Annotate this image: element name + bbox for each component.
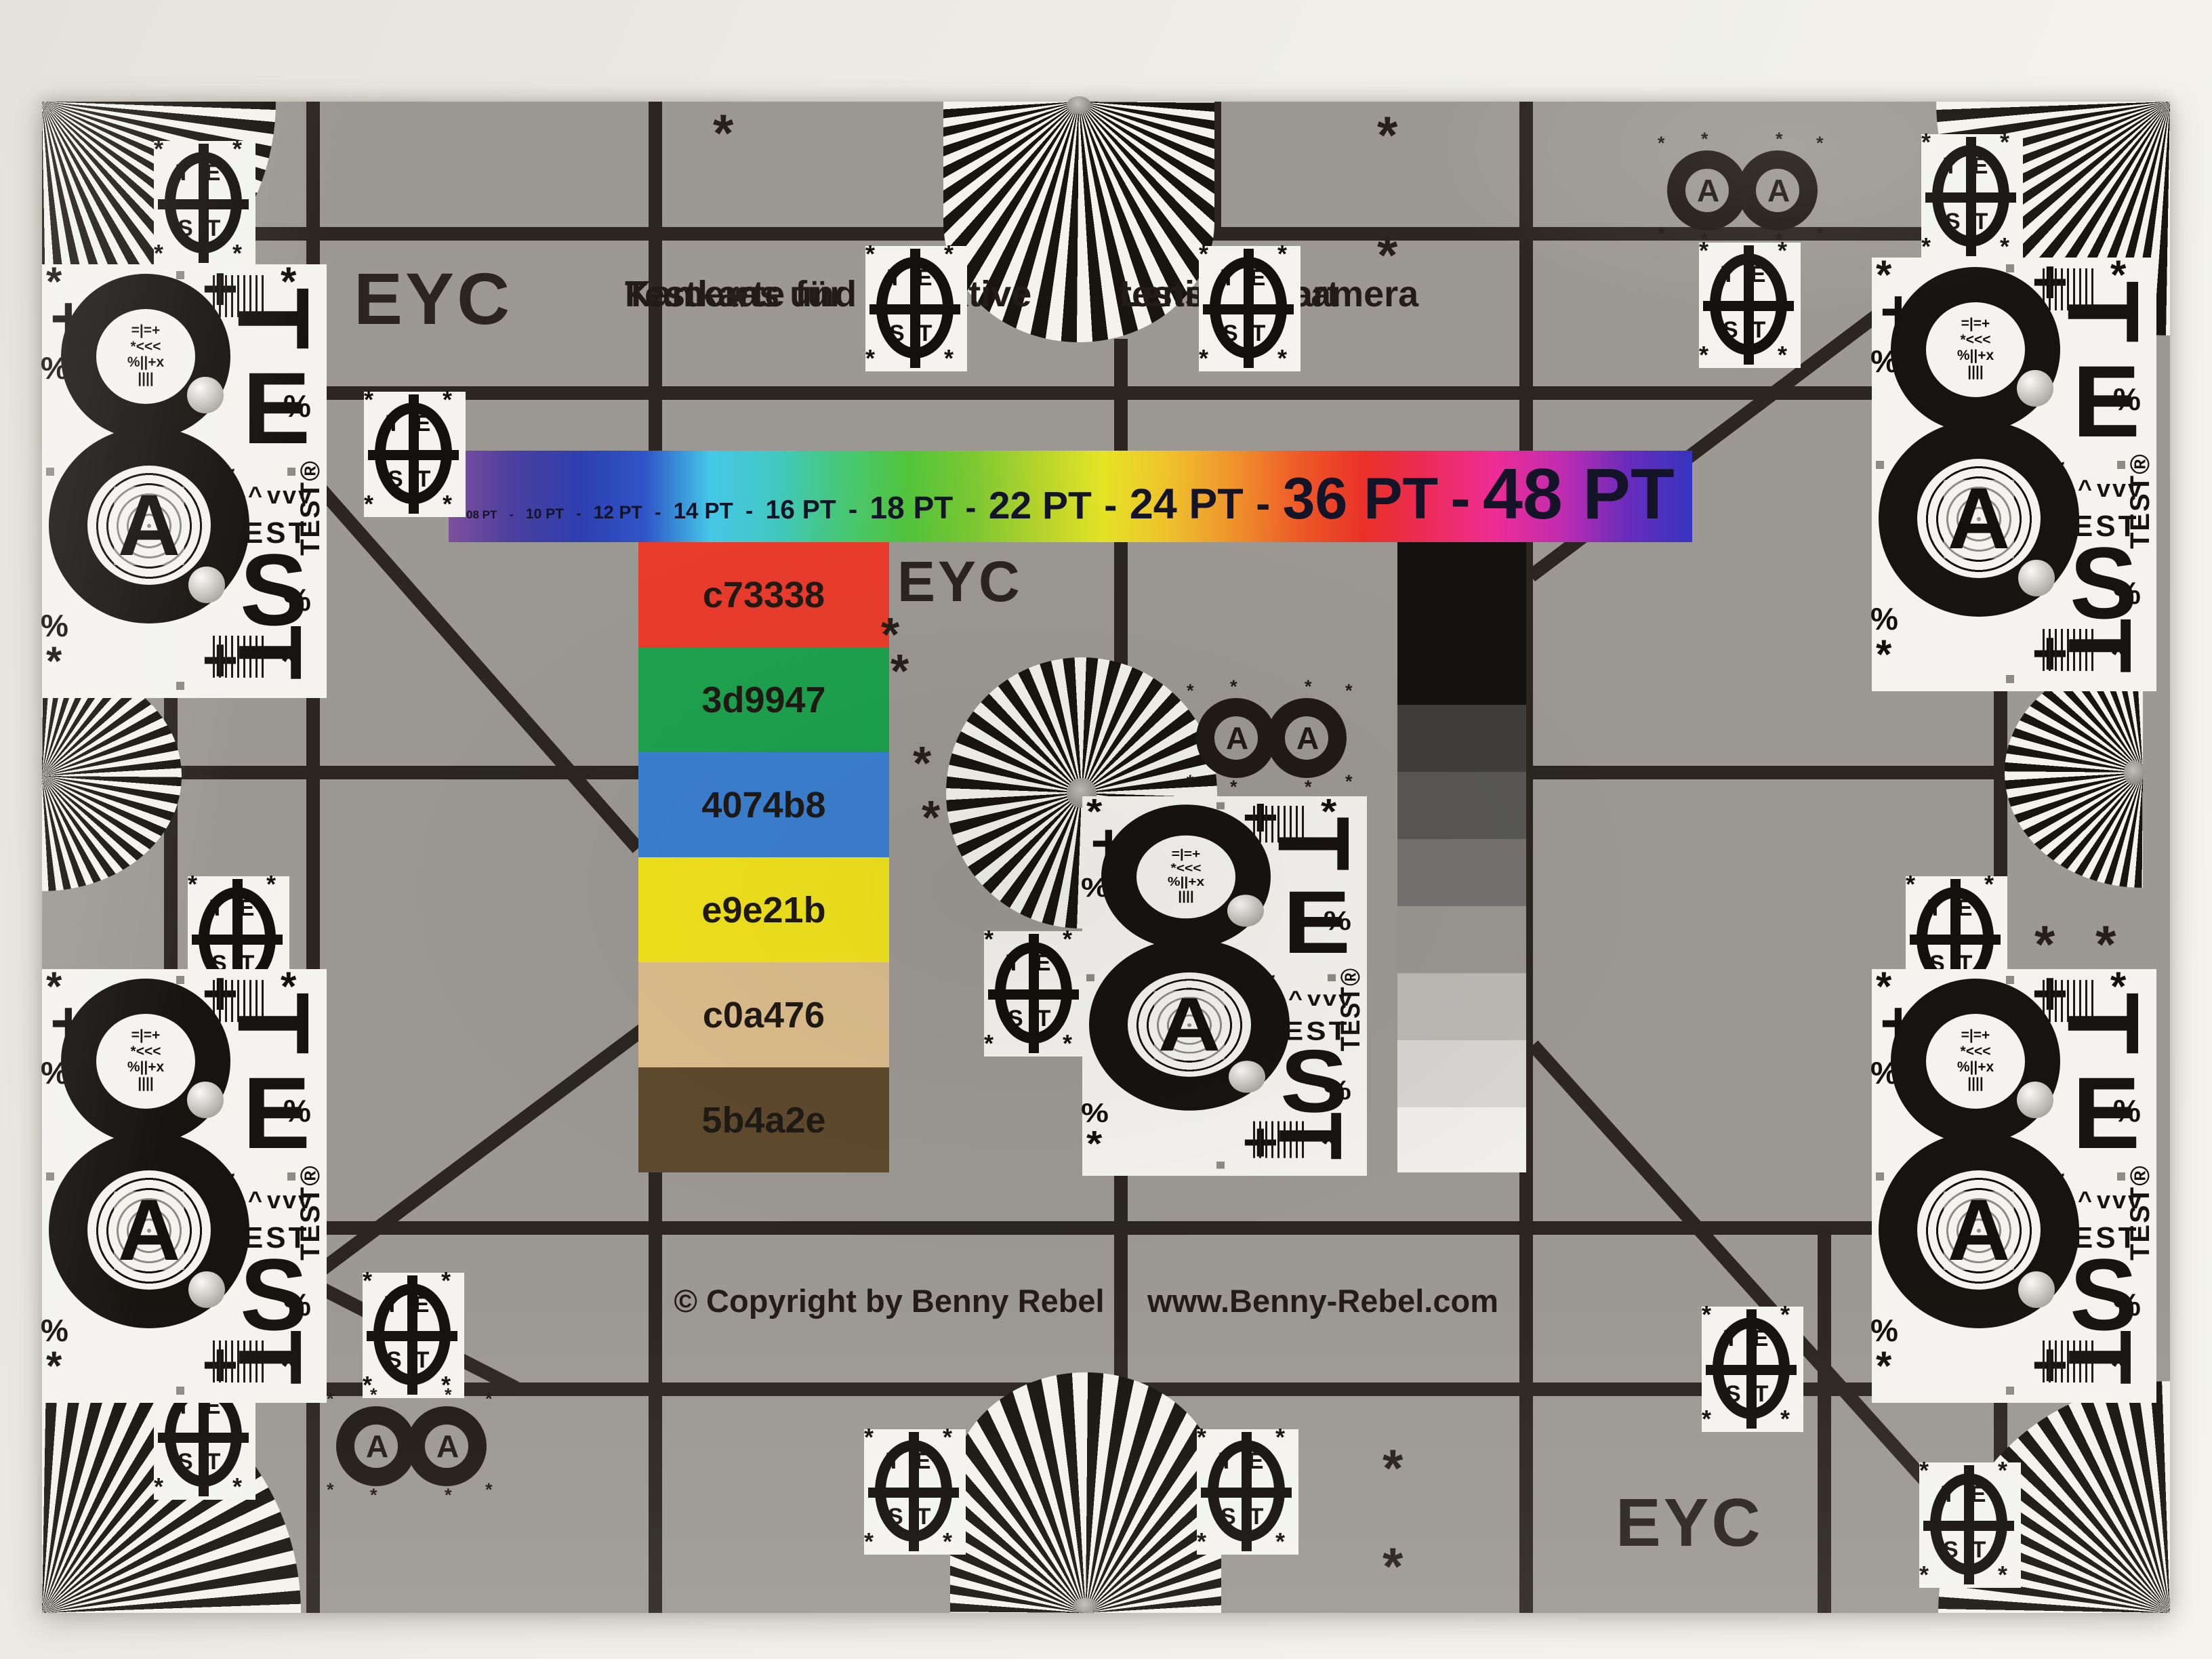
asterisk-icon: *: [1701, 230, 1708, 249]
logo-cross-horizontal: [192, 935, 283, 945]
asterisk-icon: *: [944, 346, 954, 371]
micro-row: %||+x: [99, 354, 192, 371]
letter-t-rotated: T: [234, 1330, 306, 1385]
grid-line-v7: [1818, 1228, 1831, 1613]
calibration-square: [1328, 975, 1336, 982]
asterisk-icon: *: [1277, 346, 1287, 371]
gradient-sphere: [187, 377, 224, 413]
logo-cross-horizontal: [869, 304, 960, 314]
asterisk-icon: *: [232, 1475, 242, 1499]
letter-a: A: [1944, 480, 2014, 558]
asterisk-icon: *: [1921, 130, 1931, 155]
micro-row: ||||: [99, 371, 192, 387]
asterisk-icon: *: [1230, 678, 1237, 696]
grayscale-step: [1397, 906, 1526, 973]
calibration-square: [46, 468, 54, 476]
test-registered-vertical: TEST®: [1336, 967, 1366, 1051]
asterisk-mark: *: [1382, 1447, 1403, 1489]
calibration-square: [287, 1172, 295, 1181]
logo-cross-horizontal: [158, 1433, 249, 1443]
grayscale-step: [1397, 772, 1526, 839]
logo-text-te: TE: [1221, 265, 1280, 291]
calibration-square: [2117, 461, 2125, 469]
letter-t-rotated: T: [2063, 281, 2144, 343]
gradient-sphere: [187, 1082, 224, 1118]
font-size-label: 48 PT: [1483, 453, 1675, 535]
color-patch-blue: 4074b8: [638, 752, 889, 857]
logo-text-st: ST: [1223, 321, 1279, 347]
gradient-sphere: [2018, 1271, 2055, 1308]
micro-test-pattern: =|=+ *<<< %||+x ||||: [99, 312, 192, 404]
logo-cross-horizontal: [1910, 935, 2001, 945]
micro-test-pattern: =|=+ *<<< %||+x ||||: [99, 1017, 192, 1109]
micro-test-pattern: =|=+ *<<< %||+x ||||: [1139, 838, 1233, 918]
logo-text-st: ST: [1725, 1381, 1782, 1408]
logo-text-st: ST: [1943, 1537, 1999, 1563]
logo-text-te: TE: [888, 265, 947, 291]
logo-text-st: ST: [1945, 209, 2001, 235]
asterisk-icon: *: [1984, 872, 1994, 897]
eight-a-marker-inner: A A * * * * * * * * * *: [331, 1398, 500, 1500]
grayscale-step: [1397, 1040, 1526, 1107]
micro-row: =|=+: [1929, 1027, 2022, 1044]
micro-row: =|=+: [99, 323, 192, 339]
logo-text-te: TE: [1724, 1326, 1783, 1352]
copyright-text: © Copyright by Benny Rebel: [655, 1282, 1123, 1319]
asterisk-icon: *: [1919, 1458, 1929, 1483]
asterisk-mark: *: [2095, 923, 2116, 965]
asterisk-icon: *: [46, 641, 62, 682]
gradient-sphere: [1227, 895, 1264, 926]
asterisk-mark: *: [890, 652, 909, 690]
asterisk-icon: *: [1658, 134, 1665, 152]
grayscale-step: [1397, 1107, 1526, 1172]
letter-a: A: [114, 487, 184, 565]
resolution-panel-bottom-left: * * * * % % % % + + + + =|=+ *<<< %||+x …: [42, 969, 327, 1403]
letter-s: S: [2070, 1254, 2137, 1335]
micro-row: %||+x: [1929, 1059, 2022, 1076]
asterisk-icon: *: [485, 1481, 493, 1499]
resolution-panel-center: * * * * % % % % + + + + =|=+ *<<< %||+x …: [1082, 796, 1367, 1176]
asterisk-icon: *: [944, 242, 954, 266]
asterisk-icon: *: [1780, 1407, 1790, 1431]
separator: -: [576, 505, 581, 523]
logo-text-te: TE: [1721, 262, 1780, 288]
asterisk-icon: *: [865, 346, 875, 371]
font-size-label: 12 PT: [594, 502, 642, 523]
color-patch-column: c73338 3d9947 4074b8 e9e21b c0a476 5b4a2…: [638, 542, 889, 1172]
test-chart: 08 PT - 10 PT - 12 PT - 14 PT - 16 PT - …: [42, 102, 2170, 1613]
micro-row: %||+x: [1139, 875, 1233, 889]
asterisk-icon: *: [1187, 773, 1194, 791]
color-patch-label: 5b4a2e: [701, 1099, 825, 1141]
color-patch-label: 3d9947: [701, 679, 825, 721]
resolution-panel-surface: * * * * % % % % + + + + =|=+ *<<< %||+x …: [1872, 258, 2156, 691]
asterisk-icon: *: [426, 1416, 431, 1429]
logo-text-st: ST: [386, 1347, 443, 1374]
asterisk-icon: *: [2000, 234, 2009, 259]
separator: -: [966, 489, 977, 527]
letter-a: A: [114, 1191, 184, 1269]
asterisk-mark: *: [728, 285, 748, 327]
percent-mark: %: [1870, 600, 1898, 637]
calibration-square: [2117, 1172, 2125, 1181]
logo-text-st: ST: [1008, 1006, 1064, 1032]
asterisk-icon: *: [355, 1416, 361, 1429]
logo-text-te: TE: [886, 1448, 945, 1475]
asterisk-icon: *: [445, 1386, 452, 1404]
micro-test-pattern: =|=+ *<<< %||+x ||||: [1929, 1017, 2022, 1109]
asterisk-icon: *: [2000, 130, 2009, 155]
logo-cross-horizontal: [1201, 1488, 1292, 1498]
font-size-gradient-bar: 08 PT - 10 PT - 12 PT - 14 PT - 16 PT - …: [449, 451, 1692, 542]
asterisk-icon: *: [1197, 1425, 1206, 1450]
asterisk-icon: *: [1921, 234, 1931, 259]
micro-row: ||||: [99, 1076, 192, 1092]
test-circle-logo: * * * * TE ST: [154, 141, 255, 266]
asterisk-icon: *: [1277, 242, 1287, 266]
letter-e: E: [2072, 361, 2140, 442]
asterisk-icon: *: [865, 242, 875, 266]
letter-t-rotated: T: [234, 625, 306, 680]
color-patch-label: e9e21b: [701, 889, 825, 931]
asterisk-icon: *: [1816, 134, 1824, 152]
separator: -: [745, 498, 753, 525]
arrows-left: <<<: [188, 461, 237, 489]
asterisk-icon: *: [1199, 242, 1208, 266]
letter-t-rotated: T: [1275, 1112, 1347, 1160]
eight-a-marker-inner: A A * * * * * * * * * *: [1662, 142, 1831, 244]
logo-text-te: TE: [1219, 1448, 1278, 1475]
logo-text-st: ST: [388, 466, 444, 493]
logo-cross-horizontal: [1203, 304, 1294, 314]
test-circle-logo: * * * * TE ST: [1919, 1462, 2021, 1588]
fan-center-dot: [1067, 96, 1091, 114]
letter-a: A: [1296, 722, 1319, 754]
asterisk-icon: *: [1215, 708, 1221, 721]
asterisk-icon: *: [266, 872, 276, 897]
asterisk-icon: *: [984, 927, 994, 951]
asterisk-icon: *: [1658, 225, 1665, 243]
font-size-label: 14 PT: [674, 498, 733, 524]
logo-text-te: TE: [386, 411, 445, 437]
micro-test-pattern: =|=+ *<<< %||+x ||||: [1929, 305, 2022, 397]
test-circle-logo: * * * * TE ST: [1702, 1307, 1803, 1432]
font-size-label: 16 PT: [766, 495, 836, 525]
letter-a: A: [1226, 722, 1248, 754]
asterisk-icon: *: [1998, 1563, 2007, 1587]
asterisk-icon: *: [1345, 773, 1353, 791]
test-circle-logo: * * * * TE ST: [1921, 134, 2023, 260]
asterisk-icon: *: [232, 137, 242, 161]
logo-cross-horizontal: [158, 199, 249, 209]
calibration-square: [2006, 976, 2014, 984]
asterisk-icon: *: [443, 388, 452, 412]
asterisk-icon: *: [864, 1530, 874, 1554]
asterisk-mark: *: [1377, 114, 1397, 156]
gradient-sphere: [2017, 370, 2053, 407]
logo-cross-horizontal: [868, 1488, 959, 1498]
logo-text-te: TE: [385, 1292, 444, 1318]
asterisk-icon: *: [364, 492, 373, 516]
website-text: www.Benny-Rebel.com: [1126, 1282, 1519, 1319]
asterisk-icon: *: [943, 1530, 952, 1554]
separator: -: [1450, 464, 1470, 533]
arrows-left: <<<: [188, 1166, 237, 1194]
asterisk-icon: *: [943, 1425, 952, 1450]
font-size-labels: 08 PT - 10 PT - 12 PT - 14 PT - 16 PT - …: [449, 453, 1692, 535]
resolution-panel-surface: * * * * % % % % + + + + =|=+ *<<< %||+x …: [1082, 796, 1367, 1176]
asterisk-icon: *: [154, 1475, 163, 1499]
logo-text-te: TE: [176, 160, 235, 186]
eyc-label-top-left: EYC: [354, 256, 512, 341]
calibration-square: [1216, 1162, 1225, 1169]
letter-e: E: [243, 1072, 310, 1153]
asterisk-icon: *: [188, 872, 197, 897]
letter-a: A: [436, 1431, 459, 1462]
photo-of-test-chart: { "chart": { "eyc_label": "EYC", "title_…: [0, 0, 2212, 1659]
asterisk-icon: *: [1702, 1407, 1711, 1431]
color-patch-red: c73338: [638, 542, 889, 647]
color-patch-label: 4074b8: [701, 784, 825, 826]
arrows-left: <<<: [1229, 968, 1277, 994]
test-circle-logo: * * * * TE ST: [1699, 243, 1801, 368]
eyc-label-bottom-right: EYC: [1616, 1484, 1763, 1562]
resolution-panel-top-left: * * * * % % % % + + + + =|=+ *<<< %||+x …: [42, 264, 327, 698]
asterisk-icon: *: [1780, 1303, 1790, 1327]
asterisk-icon: *: [864, 1425, 874, 1450]
eyc-label-center: EYC: [897, 549, 1023, 615]
asterisk-icon: *: [1197, 1530, 1206, 1554]
fan-center-dot: [1073, 1598, 1098, 1613]
micro-row: =|=+: [99, 1027, 192, 1044]
letter-t-rotated: T: [233, 992, 314, 1054]
micro-row: *<<<: [99, 339, 192, 355]
logo-cross-horizontal: [1703, 301, 1794, 311]
logo-text-te: TE: [1942, 1481, 2001, 1508]
asterisk-mark: *: [1382, 1545, 1403, 1587]
eight-a-marker: A A * * * * * * * * * *: [331, 1398, 500, 1500]
asterisk-icon: *: [1345, 682, 1353, 700]
asterisk-mark: *: [713, 112, 733, 154]
logo-text-te: TE: [1944, 153, 2003, 180]
test-circle-logo: * * * * TE ST: [984, 931, 1086, 1057]
resolution-panel-surface: * * * * % % % % + + + + =|=+ *<<< %||+x …: [42, 264, 327, 698]
eight-a-marker: A A * * * * * * * * * *: [1191, 690, 1360, 792]
grid-line-h2: [42, 386, 2143, 400]
letter-s: S: [240, 1254, 308, 1335]
title-german-line2: Kameras und Objektive: [625, 272, 1031, 317]
separator: -: [655, 501, 661, 523]
micro-row: *<<<: [99, 1044, 192, 1060]
asterisk-icon: *: [1275, 1425, 1285, 1450]
micro-row: *<<<: [1139, 861, 1233, 876]
letter-t-rotated: T: [2064, 618, 2136, 673]
logo-text-st: ST: [178, 216, 234, 242]
color-patch-yellow: e9e21b: [638, 857, 889, 962]
test-registered-vertical: TEST®: [2125, 1164, 2156, 1261]
logo-cross-horizontal: [368, 450, 459, 460]
calibration-square: [1216, 802, 1225, 810]
asterisk-icon: *: [1701, 130, 1708, 148]
calibration-square: [176, 1387, 184, 1395]
arrows-left: <<<: [2018, 1166, 2067, 1194]
asterisk-icon: *: [327, 1481, 334, 1499]
eight-a-marker: A A * * * * * * * * * *: [1662, 142, 1831, 244]
logo-text-te: TE: [1006, 950, 1065, 977]
grayscale-step-wedge: [1397, 542, 1526, 1172]
asterisk-icon: *: [370, 1386, 377, 1404]
asterisk-icon: *: [1305, 678, 1312, 696]
asterisk-icon: *: [1998, 1458, 2007, 1483]
calibration-square: [176, 682, 184, 690]
logo-cross-horizontal: [1923, 1521, 2014, 1531]
starburst-fan-bottom-edge: [950, 1372, 1221, 1613]
letter-s: S: [240, 549, 308, 630]
font-size-label: 18 PT: [870, 489, 954, 526]
logo-text-st: ST: [889, 321, 945, 347]
calibration-square: [2006, 1387, 2014, 1395]
letter-a: A: [1154, 991, 1225, 1059]
letter-e: E: [2072, 1072, 2140, 1153]
test-registered-vertical: TEST®: [2125, 453, 2156, 549]
resolution-panel-top-right: * * * * % % % % + + + + =|=+ *<<< %||+x …: [1872, 258, 2156, 691]
asterisk-icon: *: [1063, 927, 1072, 951]
calibration-square: [1876, 461, 1884, 469]
gradient-sphere: [188, 567, 225, 603]
separator: -: [510, 508, 514, 522]
calibration-square: [287, 468, 295, 476]
asterisk-icon: *: [1699, 343, 1708, 367]
calibration-square: [1876, 1172, 1884, 1181]
micro-row: ||||: [1929, 364, 2022, 380]
micro-row: %||+x: [1929, 348, 2022, 364]
test-circle-logo: * * * * TE ST: [865, 246, 967, 371]
separator: -: [1104, 483, 1117, 528]
asterisk-icon: *: [1757, 160, 1762, 173]
test-circle-logo: * * * * TE ST: [864, 1429, 966, 1555]
asterisk-icon: *: [1776, 230, 1783, 249]
font-size-label: 08 PT: [466, 508, 497, 522]
test-circle-logo: * * * * TE ST: [1199, 246, 1300, 371]
font-size-label: 22 PT: [989, 483, 1092, 528]
starburst-fan-right-edge: [2005, 657, 2143, 888]
asterisk-icon: *: [370, 1486, 377, 1504]
gradient-sphere: [188, 1271, 225, 1308]
micro-row: =|=+: [1929, 316, 2022, 332]
color-patch-brown: 5b4a2e: [638, 1067, 889, 1172]
asterisk-icon: *: [364, 388, 373, 412]
asterisk-icon: *: [1906, 872, 1915, 897]
percent-mark: %: [1081, 1097, 1109, 1128]
asterisk-icon: *: [327, 1390, 334, 1408]
asterisk-icon: *: [441, 1269, 451, 1293]
asterisk-icon: *: [1230, 778, 1237, 796]
grayscale-step: [1397, 839, 1526, 906]
test-circle-logo: * * * * TE ST: [1197, 1429, 1298, 1555]
asterisk-icon: *: [363, 1269, 372, 1293]
test-circle-logo: * * * * TE ST: [364, 392, 466, 517]
asterisk-mark: *: [913, 744, 931, 782]
percent-mark: %: [1870, 1312, 1898, 1349]
calibration-square: [46, 1172, 54, 1181]
letter-t-rotated: T: [2064, 1330, 2136, 1385]
asterisk-icon: *: [1876, 1346, 1891, 1387]
color-patch-tan: c0a476: [638, 962, 889, 1067]
letter-a: A: [1697, 175, 1719, 206]
percent-mark: %: [41, 607, 68, 644]
letter-t-rotated: T: [233, 287, 314, 350]
gradient-sphere: [1229, 1061, 1265, 1092]
font-size-label: 10 PT: [526, 506, 564, 523]
test-registered-vertical: TEST®: [295, 459, 326, 556]
fan-center-dot: [2124, 760, 2144, 785]
micro-row: *<<<: [1929, 332, 2022, 348]
asterisk-icon: *: [154, 241, 163, 266]
font-size-label: 24 PT: [1130, 480, 1244, 529]
logo-text-te: TE: [1928, 895, 1987, 922]
asterisk-icon: *: [443, 492, 452, 516]
calibration-square: [176, 976, 184, 984]
gradient-sphere: [2017, 1082, 2053, 1118]
letter-a: A: [1767, 175, 1790, 206]
letter-s: S: [1280, 1046, 1348, 1117]
asterisk-mark: *: [922, 798, 940, 836]
calibration-square: [2006, 675, 2014, 683]
logo-text-te: TE: [210, 895, 269, 922]
asterisk-icon: *: [485, 1390, 493, 1408]
logo-text-st: ST: [888, 1504, 944, 1530]
test-circle-logo: * * * * TE ST: [363, 1273, 464, 1398]
micro-row: *<<<: [1929, 1044, 2022, 1060]
asterisk-icon: *: [154, 137, 163, 161]
asterisk-icon: *: [1063, 1031, 1072, 1056]
micro-row: %||+x: [99, 1059, 192, 1076]
logo-text-st: ST: [178, 1449, 234, 1475]
eight-a-marker-inner: A A * * * * * * * * * *: [1191, 690, 1360, 792]
calibration-square: [176, 271, 184, 279]
grayscale-step: [1397, 973, 1526, 1040]
letter-e: E: [1283, 886, 1351, 958]
micro-row: ||||: [1139, 889, 1233, 903]
percent-mark: %: [41, 1312, 68, 1349]
logo-text-st: ST: [1221, 1504, 1277, 1530]
letter-s: S: [2070, 542, 2137, 623]
asterisk-icon: *: [1286, 708, 1291, 721]
asterisk-icon: *: [1816, 225, 1824, 243]
grayscale-step: [1397, 705, 1526, 772]
color-patch-label: c0a476: [703, 994, 825, 1036]
logo-cross-horizontal: [988, 989, 1079, 1000]
letter-t-rotated: T: [2063, 992, 2144, 1054]
logo-text-st: ST: [1723, 317, 1779, 344]
asterisk-mark: *: [1377, 234, 1397, 276]
logo-cross-horizontal: [1925, 192, 2016, 203]
asterisk-icon: *: [1305, 778, 1312, 796]
arrows-left: <<<: [2018, 454, 2067, 483]
asterisk-icon: *: [1187, 682, 1194, 700]
asterisk-icon: *: [1086, 1126, 1102, 1162]
resolution-panel-bottom-right: * * * * % % % % + + + + =|=+ *<<< %||+x …: [1872, 969, 2156, 1403]
asterisk-icon: *: [1199, 346, 1208, 371]
calibration-square: [2006, 264, 2014, 272]
micro-row: ||||: [1929, 1076, 2022, 1092]
asterisk-icon: *: [1919, 1563, 1929, 1587]
micro-row: =|=+: [1139, 847, 1233, 861]
asterisk-icon: *: [1275, 1530, 1285, 1554]
separator: -: [1256, 478, 1270, 529]
resolution-panel-surface: * * * * % % % % + + + + =|=+ *<<< %||+x …: [42, 969, 327, 1403]
